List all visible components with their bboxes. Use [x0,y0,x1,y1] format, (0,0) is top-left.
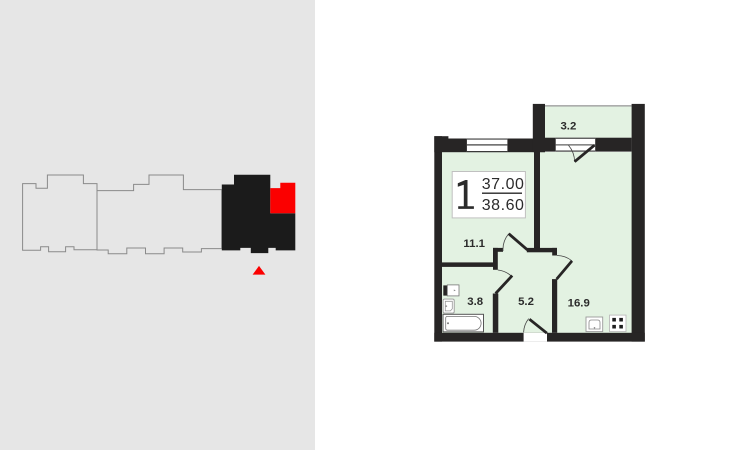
svg-text:11.1: 11.1 [463,238,485,250]
svg-text:37.00: 37.00 [482,176,525,193]
svg-text:3.2: 3.2 [560,120,576,132]
svg-text:38.60: 38.60 [482,197,525,214]
svg-text:16.9: 16.9 [568,297,590,309]
svg-text:3.8: 3.8 [467,296,483,308]
svg-text:5.2: 5.2 [518,296,534,308]
